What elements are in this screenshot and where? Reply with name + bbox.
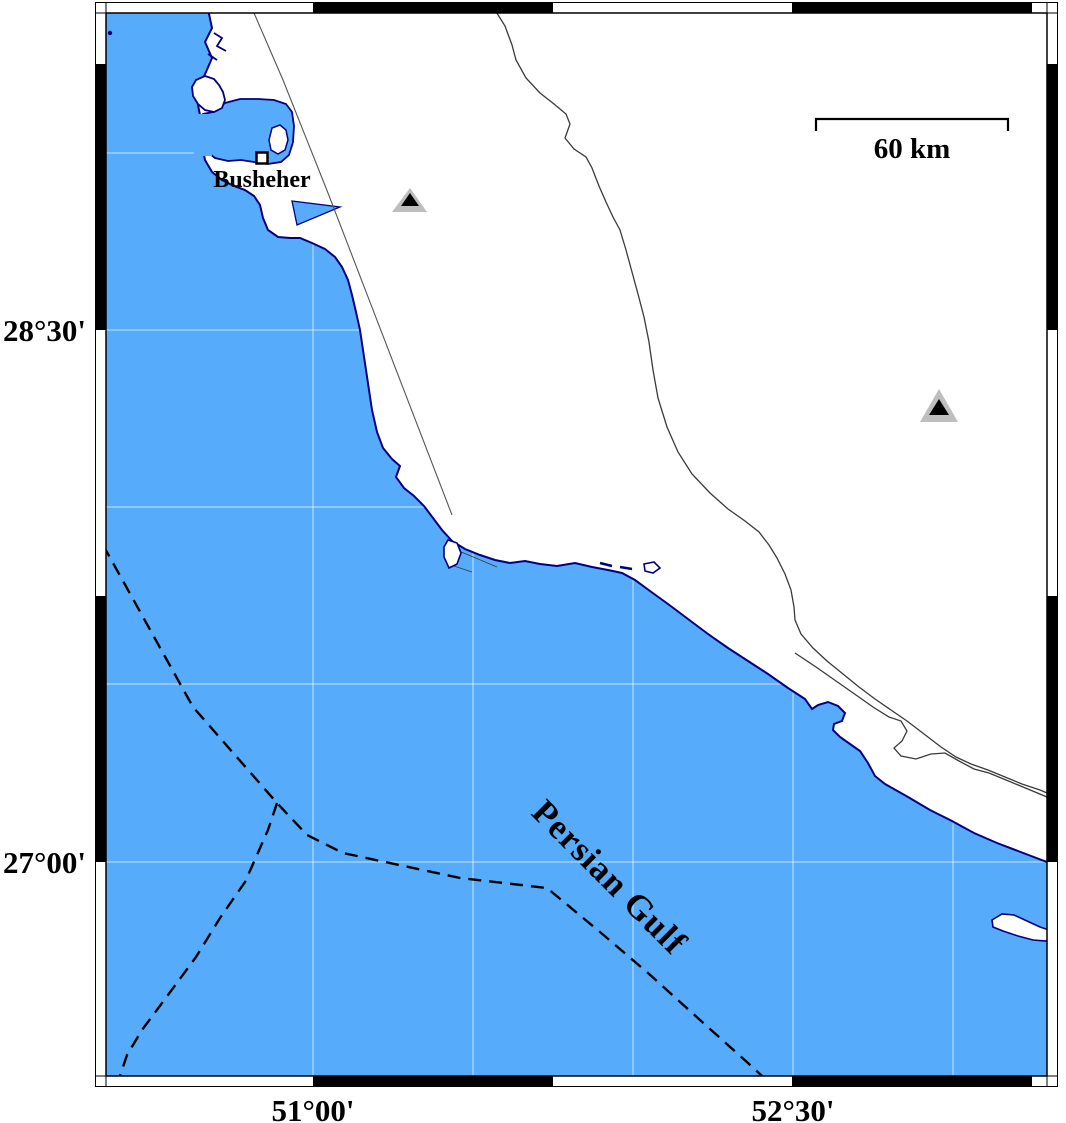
bay-mouth: [194, 114, 212, 156]
axis-label-lat-2700: 27°00': [3, 845, 86, 880]
axis-label-lat-2830: 28°30': [3, 313, 86, 348]
frame-corner: [96, 3, 107, 14]
frame-corner: [1047, 1076, 1058, 1087]
frame-segment: [1048, 596, 1058, 862]
frame-corner: [1047, 3, 1058, 14]
map-figure: Busheher Persian Gulf 60 km 28°30' 27°00…: [0, 0, 1066, 1123]
bay-island: [269, 125, 288, 154]
scalebar-label: 60 km: [874, 133, 951, 165]
frame-segment: [792, 3, 1032, 13]
city-label-busheher: Busheher: [213, 167, 311, 193]
city-marker-busheher: [257, 153, 268, 164]
frame-segment: [313, 1077, 553, 1087]
frame-segment: [313, 3, 553, 13]
tiny-islet: [108, 31, 112, 35]
map-svg: Busheher Persian Gulf 60 km 28°30' 27°00…: [0, 0, 1066, 1123]
frame-segment: [96, 64, 106, 330]
frame-corner: [96, 1076, 107, 1087]
frame-segment: [792, 1077, 1032, 1087]
frame-segment: [1048, 64, 1058, 330]
axis-label-lon-5100: 51°00': [271, 1093, 354, 1123]
frame-segment: [96, 596, 106, 862]
axis-label-lon-5230: 52°30': [751, 1093, 834, 1123]
